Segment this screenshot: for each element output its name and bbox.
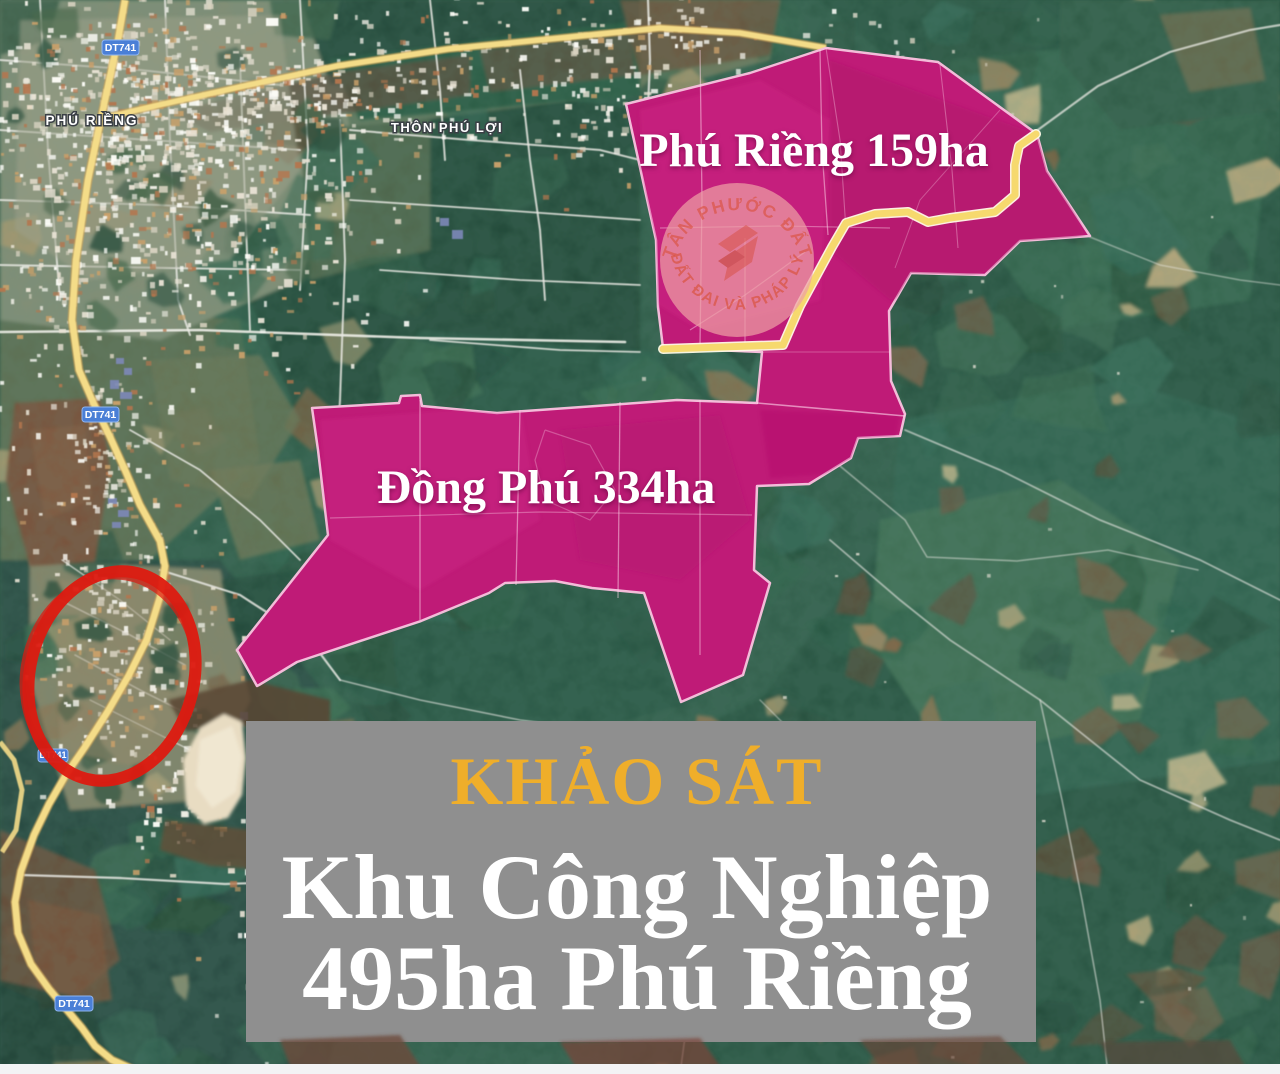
svg-text:KHẢO SÁT: KHẢO SÁT	[450, 743, 823, 819]
svg-text:Phú Riềng 159ha: Phú Riềng 159ha	[639, 124, 988, 177]
svg-text:THÔN PHÚ LỢI: THÔN PHÚ LỢI	[391, 120, 503, 135]
svg-text:DT741: DT741	[105, 42, 137, 54]
svg-text:DT741: DT741	[85, 409, 117, 421]
svg-text:PHÚ RIỀNG: PHÚ RIỀNG	[45, 113, 138, 128]
svg-text:Đồng Phú 334ha: Đồng Phú 334ha	[377, 461, 716, 514]
svg-text:DT741: DT741	[58, 998, 90, 1010]
svg-text:Khu Công Nghiệp: Khu Công Nghiệp	[282, 836, 993, 938]
svg-text:495ha Phú Riềng: 495ha Phú Riềng	[302, 927, 972, 1029]
